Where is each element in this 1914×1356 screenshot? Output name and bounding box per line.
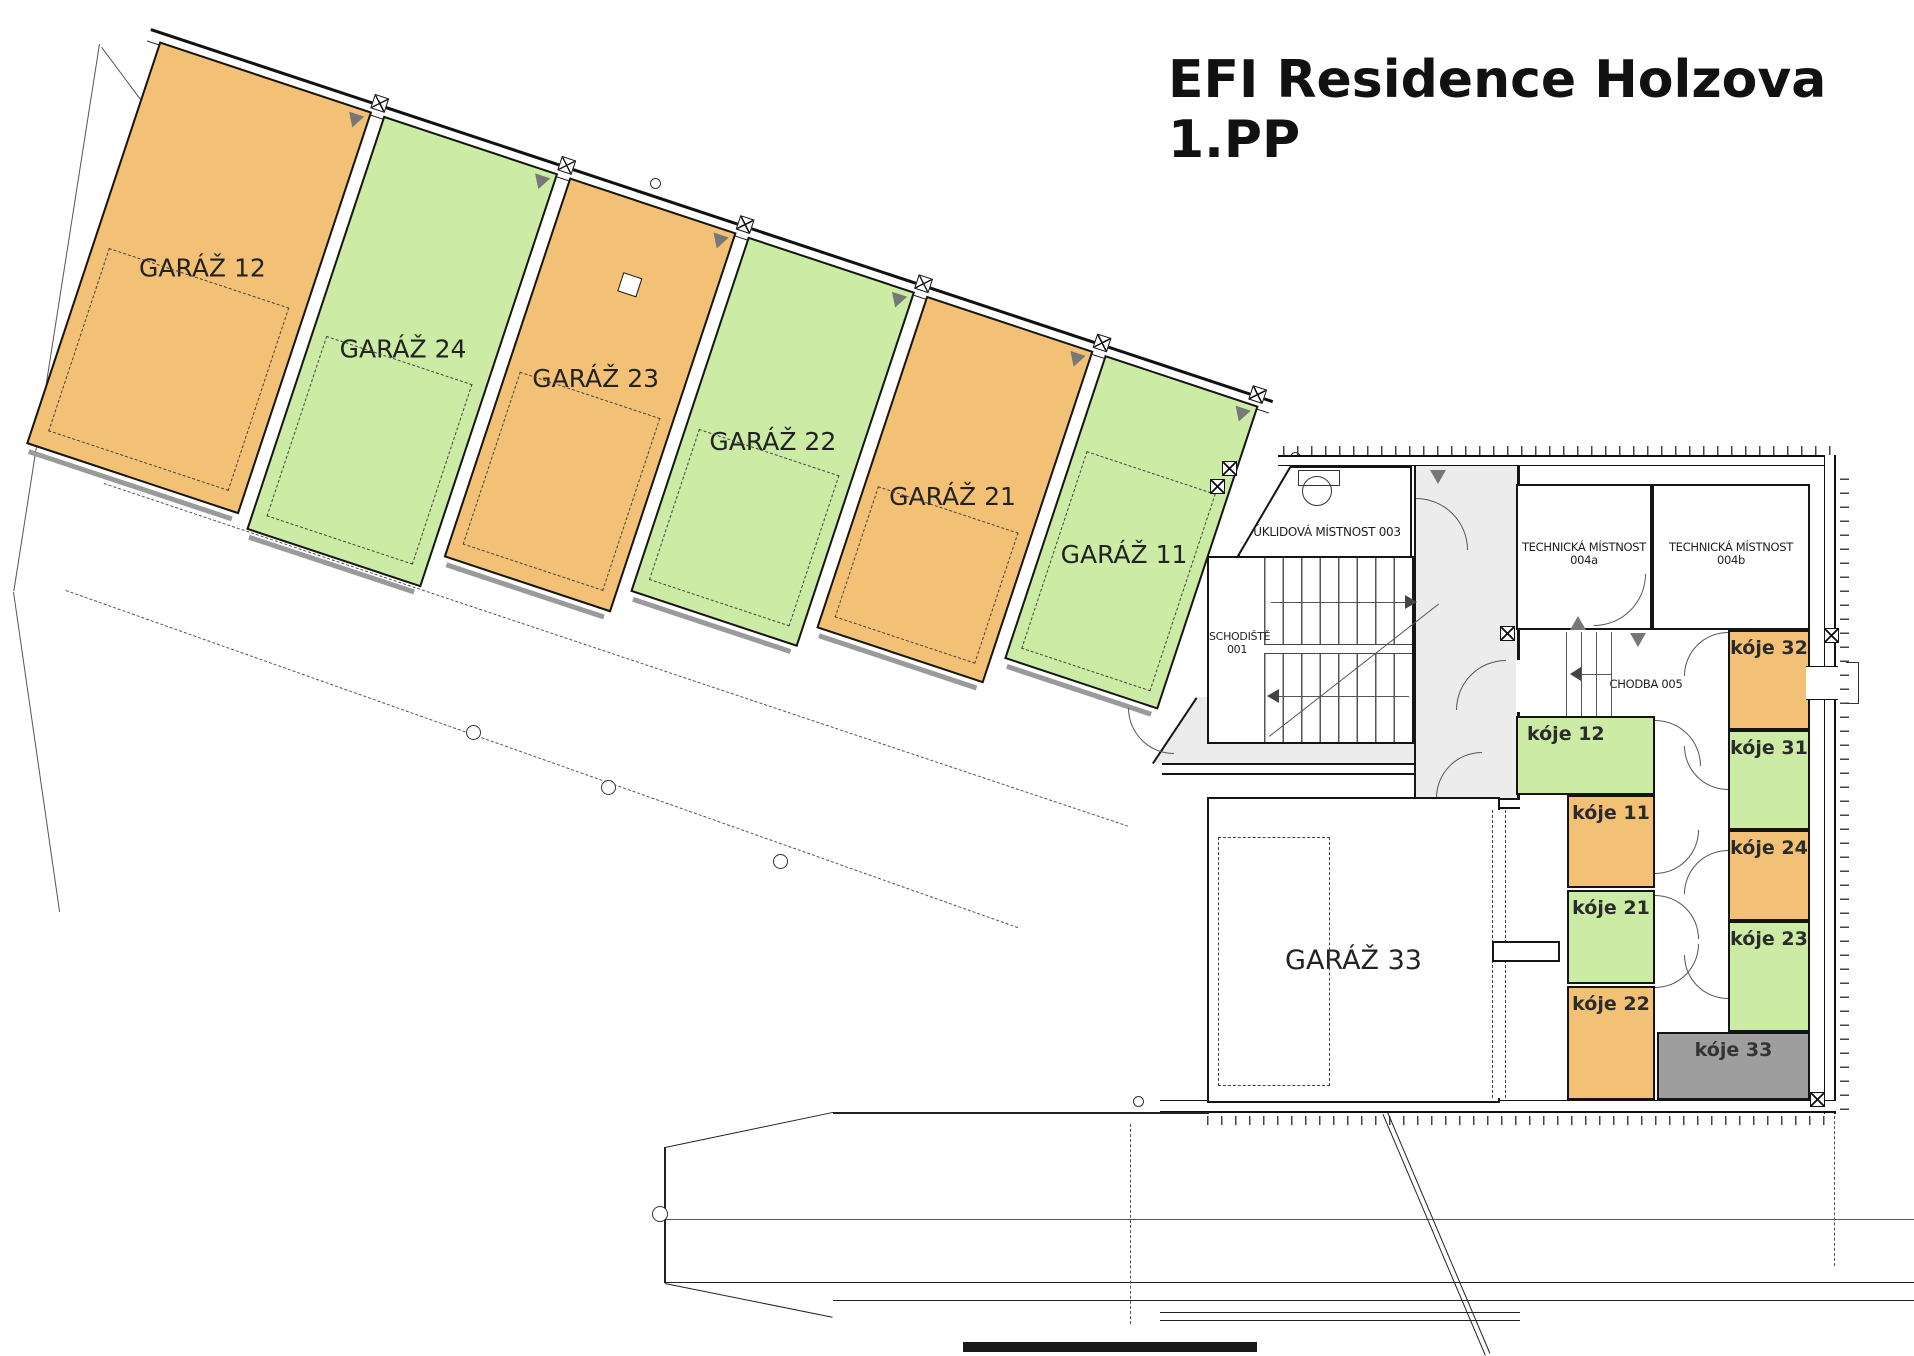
unit-label: kóje 21 [1569,897,1653,919]
garage-strip: GARÁŽ 12 GARÁŽ 24 GARÁŽ 23 GARÁŽ 22 GARÁ… [15,30,1267,825]
parking-spot-outline [48,248,288,491]
unit-koje-31[interactable]: kóje 31 [1728,730,1810,830]
door-swing-marker [345,112,365,130]
door-swing-marker [1066,351,1086,369]
site-marker-circle [466,725,481,740]
exterior-wall [1278,455,1836,466]
shaft-symbol [617,272,642,297]
unit-koje-22[interactable]: kóje 22 [1567,986,1655,1100]
retaining-wall-band [963,1342,1257,1352]
door-swing-arc [1684,955,1728,999]
room-label-line2: 004a [1570,553,1598,567]
door-opening [1516,660,1521,712]
stair-arrow-head [1405,595,1417,609]
unit-koje-32[interactable]: kóje 32 [1728,630,1810,730]
room-label: SCHODIŠTĚ 001 [1209,630,1265,656]
pilaster-x-marker [1222,461,1237,476]
pilaster-x-marker [1810,1092,1825,1107]
parking-spot-outline [649,429,840,627]
exterior-door-bracket [1846,662,1859,704]
road-marker-circle [652,1206,668,1222]
road-taper-line [665,1283,833,1318]
road-edge-line [833,1112,1209,1114]
door-swing-arc [1684,850,1728,894]
unit-koje-23[interactable]: kóje 23 [1728,921,1810,1032]
room-label: TECHNICKÁ MÍSTNOST 004a [1520,541,1648,567]
room-label-line1: TECHNICKÁ MÍSTNOST [1669,540,1793,554]
wall-hatching [1283,446,1836,455]
door-swing-marker [709,233,729,251]
unit-koje-11[interactable]: kóje 11 [1567,795,1655,888]
stair-arrow-head [1267,689,1279,703]
unit-koje-12[interactable]: kóje 12 [1516,716,1655,795]
stair-arrow-line [1271,696,1409,697]
parking-spot-outline [266,335,473,564]
site-marker-circle [773,854,788,869]
unit-garage-33[interactable]: GARÁŽ 33 [1207,797,1500,1103]
door-swing-marker [888,292,908,310]
wall-hatching [1840,470,1849,1110]
road-edge-line [664,1282,1914,1283]
door-marker [1430,470,1446,484]
stair-arrow-line [1271,602,1409,603]
axis-dashdot-line [1834,1116,1835,1266]
door-swing-marker [531,173,551,191]
unit-label: kóje 24 [1730,837,1808,859]
road-taper-line [665,1112,834,1148]
parking-spot-outline [835,486,1019,664]
pilaster-x-marker [1824,628,1839,643]
unit-label: kóje 23 [1730,928,1808,950]
unit-koje-33[interactable]: kóje 33 [1657,1032,1810,1100]
unit-label: kóje 33 [1659,1039,1808,1061]
door-swing-marker [1231,406,1251,424]
road-edge-line [833,1300,1914,1301]
site-marker-circle [601,780,616,795]
column-marker-circle [1133,1096,1144,1107]
room-label: TECHNICKÁ MÍSTNOST 004b [1656,541,1806,567]
site-boundary-line [13,592,60,912]
room-label: ÚKLIDOVÁ MÍSTNOST 003 [1248,526,1406,539]
room-label-line1: SCHODIŠTĚ [1209,630,1270,643]
door-swing-arc [1684,746,1728,790]
floorplan-page: { "title": {"line1": "EFI Residence Holz… [0,0,1914,1353]
ramp-arrow-line [1578,674,1612,675]
wall-hatching [1207,1116,1830,1125]
stair-landing [1264,644,1412,654]
room-label-line2: 004b [1717,553,1745,567]
interior-wall [1162,763,1414,775]
door-swing-arc [1655,895,1699,939]
column-marker-circle [650,178,661,189]
door-swing-arc [1684,632,1728,676]
room-technicka-mistnost-004b[interactable]: TECHNICKÁ MÍSTNOST 004b [1652,484,1810,630]
unit-label: kóje 11 [1569,802,1653,824]
plan-title-line2: 1.PP [1168,110,1826,170]
exterior-wall [1824,455,1836,1114]
room-label-line1: TECHNICKÁ MÍSTNOST [1522,540,1646,554]
parking-spot-outline [1218,837,1330,1086]
plan-title-line1: EFI Residence Holzova [1168,50,1826,110]
room-technicka-mistnost-004a[interactable]: TECHNICKÁ MÍSTNOST 004a [1516,484,1652,630]
parking-spot-outline [463,372,661,591]
unit-koje-21[interactable]: kóje 21 [1567,890,1655,984]
door-swing-arc [1594,574,1646,626]
parking-spot-outline [1021,451,1216,692]
sink-symbol [1298,470,1340,486]
ramp-arrow-head [1570,667,1581,681]
unit-label: kóje 32 [1730,637,1808,659]
retaining-wall-line [1160,1312,1520,1321]
room-label-line2: 001 [1227,643,1247,656]
door-marker [1570,616,1586,630]
unit-label: kóje 12 [1518,723,1653,745]
exterior-door-opening [1806,666,1838,700]
pilaster-x-marker [1500,626,1515,641]
room-schodiste-001[interactable]: SCHODIŠTĚ 001 [1207,556,1414,744]
unit-label: kóje 31 [1730,737,1808,759]
door-marker [1630,633,1646,647]
unit-label: kóje 22 [1569,993,1653,1015]
unit-koje-24[interactable]: kóje 24 [1728,830,1810,921]
road-center-line [664,1219,1914,1220]
wall-stub [1492,941,1560,962]
plan-title: EFI Residence Holzova 1.PP [1168,50,1826,170]
axis-dashdot-line [1130,1124,1131,1324]
pilaster-x-marker [1210,479,1225,494]
